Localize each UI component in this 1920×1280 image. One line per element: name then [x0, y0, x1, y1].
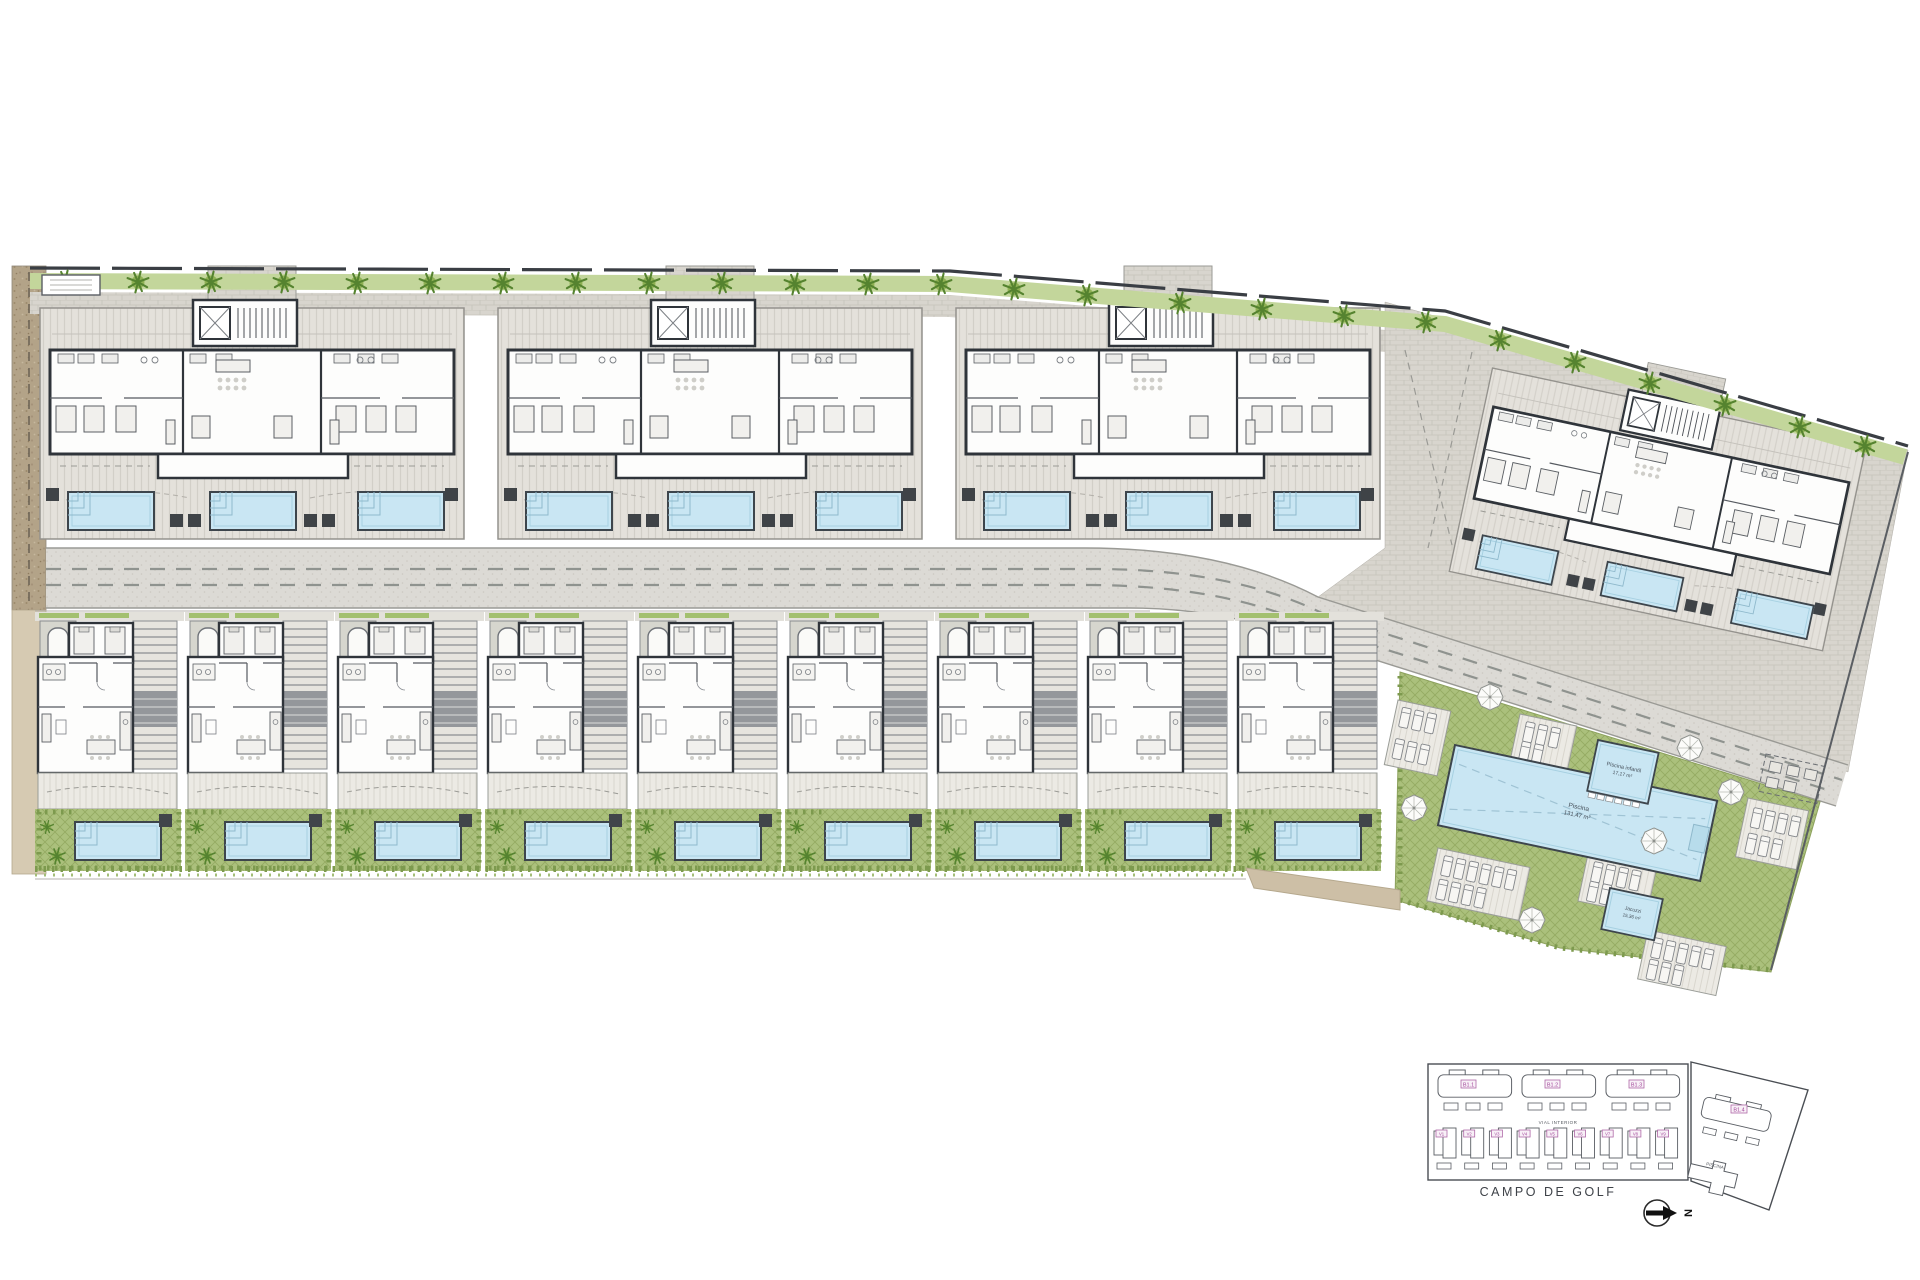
villa-v3	[335, 612, 484, 871]
villa-v4	[485, 612, 634, 871]
site-plan-canvas: Piscina 131,47 m² Piscina infantil 17,17…	[0, 0, 1920, 1280]
villa-label: V3	[1494, 1132, 1500, 1137]
sun-deck	[1736, 798, 1809, 870]
villa-v8	[1085, 612, 1234, 871]
key-plan-villa-labels: V1 V2 V3 V4 V5 V6 V7 V8 V9	[1436, 1130, 1669, 1137]
villa-v2	[185, 612, 334, 871]
site-plan-drawing: Piscina 131,47 m² Piscina infantil 17,17…	[0, 0, 1920, 1280]
key-plan-villa-pools	[1437, 1163, 1673, 1169]
kids-pool: Piscina infantil 17,17 m²	[1586, 740, 1659, 810]
villa-row	[35, 612, 1384, 871]
parasol-icon	[1477, 684, 1503, 710]
villa-label: V4	[1522, 1132, 1528, 1137]
villa-label: V2	[1467, 1132, 1473, 1137]
building-label: B1.2	[1547, 1083, 1558, 1089]
villa-label: V8	[1633, 1132, 1639, 1137]
parasol-icon	[1677, 735, 1703, 761]
villa-v6	[785, 612, 934, 871]
building-label: B1.3	[1631, 1083, 1642, 1089]
parasol-icon	[1641, 828, 1667, 854]
parasol-icon	[1401, 795, 1427, 821]
key-plan: B1.1 B1.2 B1.3 VIAL INTERIOR V1 V2 V3 V4…	[1428, 1062, 1808, 1226]
villa-v1	[35, 612, 184, 871]
parasol-icon	[1519, 907, 1545, 933]
rear-path	[1246, 868, 1400, 910]
north-label: N	[1682, 1209, 1694, 1217]
villa-label: V7	[1605, 1132, 1611, 1137]
interior-road-label: VIAL INTERIOR	[1539, 1120, 1578, 1125]
north-arrow: N	[1644, 1200, 1694, 1226]
villa-v5	[635, 612, 784, 871]
parasol-icon	[1718, 779, 1744, 805]
building-label: B1.1	[1463, 1083, 1474, 1089]
bottom-hedge	[35, 868, 1400, 910]
villa-label: V1	[1439, 1132, 1445, 1137]
golf-course-label: CAMPO DE GOLF	[1480, 1185, 1617, 1199]
villa-label: V6	[1577, 1132, 1583, 1137]
villa-label: V9	[1661, 1132, 1667, 1137]
villa-v9	[1235, 612, 1384, 871]
villa-v7	[935, 612, 1084, 871]
key-plan-building-pools	[1444, 1103, 1670, 1110]
villa-label: V5	[1550, 1132, 1556, 1137]
building-label: B1.4	[1733, 1108, 1744, 1114]
